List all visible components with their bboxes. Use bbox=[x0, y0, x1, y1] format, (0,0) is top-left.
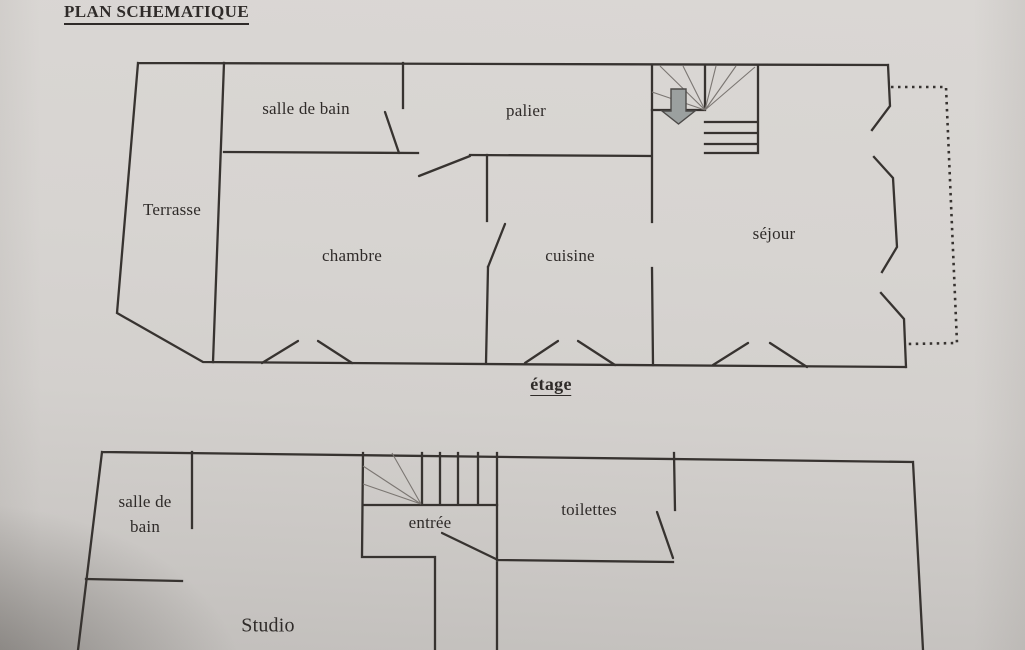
balcony-dashed-outline bbox=[891, 87, 957, 344]
upper-stairs-winder-lines bbox=[652, 66, 755, 110]
door-leaf-entree bbox=[442, 533, 498, 560]
window-mark-chambre bbox=[262, 341, 352, 363]
lower-stairs-winder-lines bbox=[363, 453, 421, 504]
window-mark-sejour bbox=[713, 343, 807, 367]
room-label-salle-de-bain-lower: salle de bain bbox=[90, 489, 200, 539]
room-label-entree: entrée bbox=[409, 513, 452, 533]
room-label-palier: palier bbox=[506, 101, 546, 121]
upper-stairs bbox=[652, 65, 758, 153]
room-label-sejour: séjour bbox=[753, 224, 796, 244]
door-leaf-cuisine bbox=[488, 224, 505, 267]
room-label-toilettes: toilettes bbox=[561, 500, 617, 520]
page-title: PLAN SCHEMATIQUE bbox=[64, 2, 249, 25]
lower-stairs bbox=[363, 453, 497, 505]
room-label-studio: Studio bbox=[241, 615, 294, 638]
room-label-salle-de-bain-upper: salle de bain bbox=[262, 99, 350, 119]
floor-caption-etage: étage bbox=[530, 374, 571, 396]
door-leaf-salle-de-bain-upper bbox=[385, 112, 399, 153]
window-mark-cuisine bbox=[525, 341, 615, 365]
room-label-terrasse: Terrasse bbox=[143, 200, 201, 220]
lower-outer-walls bbox=[78, 452, 923, 650]
door-leaf-toilettes bbox=[657, 512, 673, 558]
door-swings-lower bbox=[442, 512, 673, 560]
document-page: PLAN SCHEMATIQUE salle de bain palier Te… bbox=[0, 0, 1025, 650]
room-label-salle-de-bain-lower-line2: bain bbox=[130, 517, 160, 536]
room-label-cuisine: cuisine bbox=[545, 246, 595, 266]
lower-floor-plan bbox=[78, 452, 923, 650]
lower-inner-walls bbox=[86, 452, 675, 650]
floorplan-linework bbox=[0, 0, 1025, 650]
stairs-down-arrow-icon bbox=[662, 89, 695, 124]
room-label-salle-de-bain-lower-line1: salle de bbox=[118, 492, 171, 511]
door-leaf-palier bbox=[419, 156, 470, 176]
room-label-chambre: chambre bbox=[322, 246, 382, 266]
